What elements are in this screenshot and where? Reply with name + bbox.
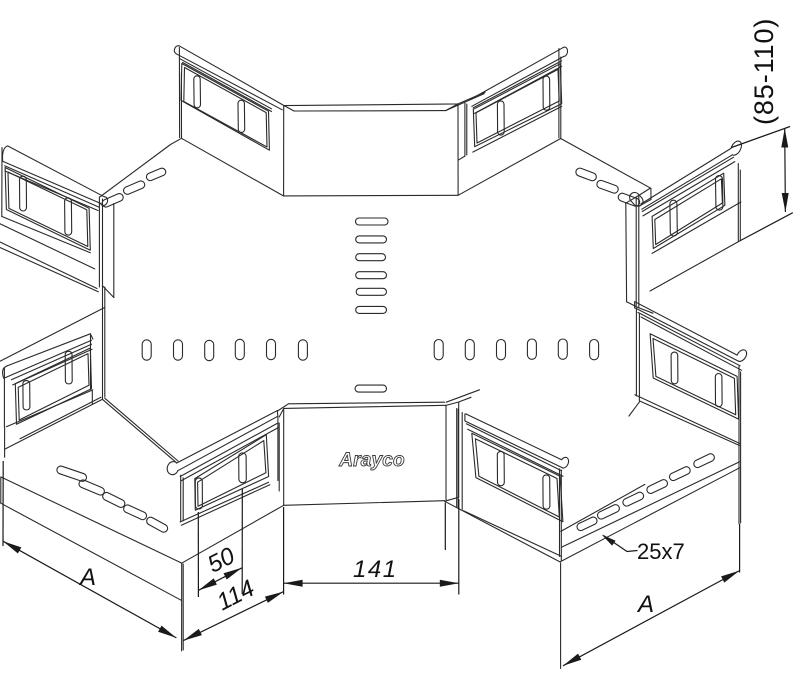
svg-text:(85-110): (85-110) — [749, 18, 779, 125]
svg-text:Arayco: Arayco — [338, 450, 405, 471]
svg-text:25x7: 25x7 — [637, 539, 685, 564]
svg-text:141: 141 — [353, 556, 398, 583]
svg-text:A: A — [636, 591, 654, 618]
svg-text:A: A — [78, 564, 96, 591]
